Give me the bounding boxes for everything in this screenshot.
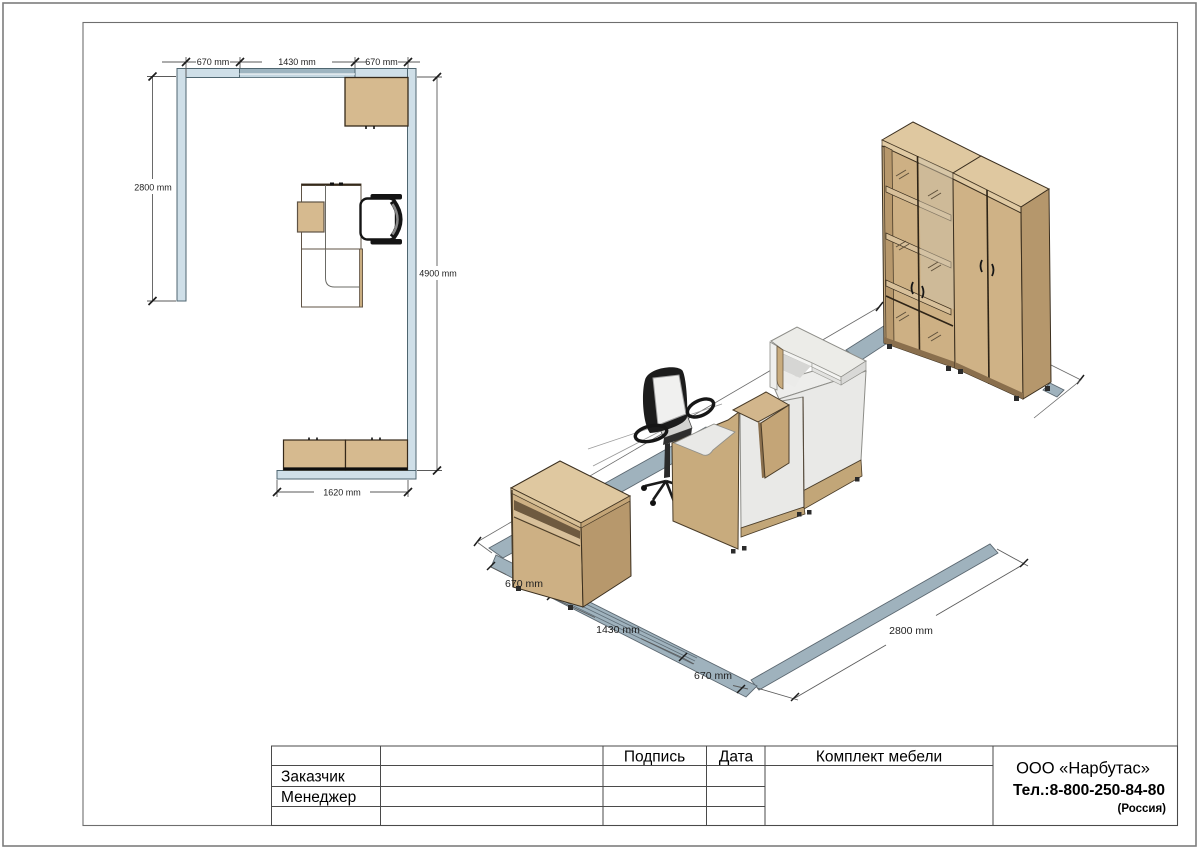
svg-text:670 mm: 670 mm: [197, 57, 230, 67]
svg-text:670 mm: 670 mm: [365, 57, 398, 67]
svg-text:1430 mm: 1430 mm: [278, 57, 316, 67]
svg-text:4900 mm: 4900 mm: [419, 269, 457, 279]
svg-text:670 mm: 670 mm: [694, 670, 732, 682]
svg-text:Дата: Дата: [719, 749, 754, 766]
svg-text:Комплект мебели: Комплект мебели: [816, 749, 942, 766]
svg-text:670 mm: 670 mm: [505, 578, 543, 590]
svg-text:1620 mm: 1620 mm: [323, 488, 361, 498]
svg-text:Подпись: Подпись: [624, 749, 685, 766]
svg-text:(Россия): (Россия): [1118, 803, 1167, 815]
svg-text:Заказчик: Заказчик: [281, 769, 345, 786]
svg-text:Менеджер: Менеджер: [281, 789, 356, 806]
svg-text:2800 mm: 2800 mm: [134, 183, 172, 193]
svg-text:ООО «Нарбутас»: ООО «Нарбутас»: [1016, 760, 1150, 778]
svg-text:Тел.:8-800-250-84-80: Тел.:8-800-250-84-80: [1013, 782, 1165, 799]
svg-text:2800 mm: 2800 mm: [889, 625, 933, 637]
svg-text:1430 mm: 1430 mm: [596, 624, 640, 636]
